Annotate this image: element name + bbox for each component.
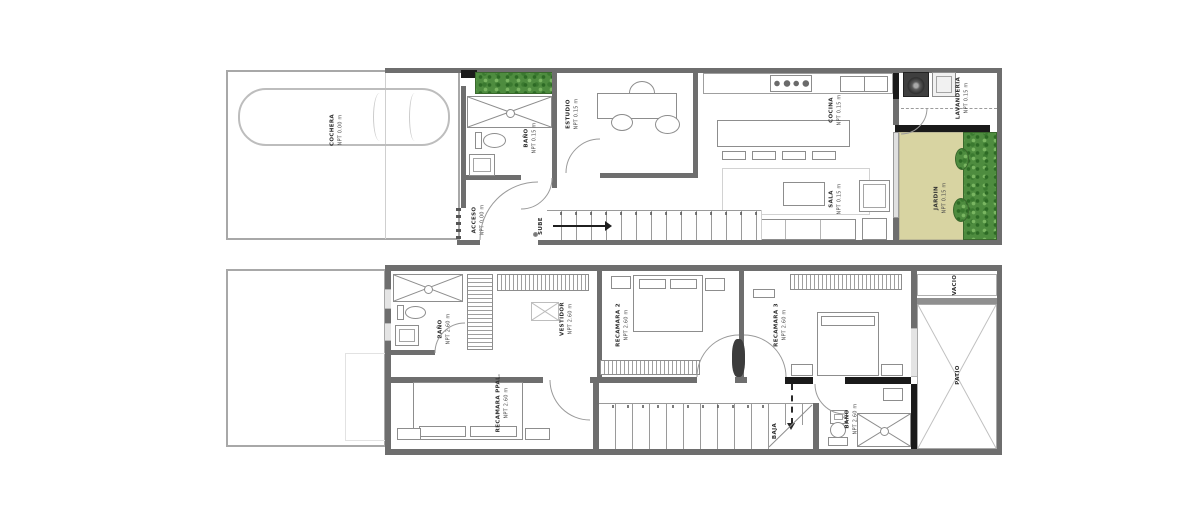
floor-plans-canvas: COCHERA NPT 0.00 m BAÑO NPT 0.15 m [0,0,1200,507]
first-floor-plan: COCHERA NPT 0.00 m BAÑO NPT 0.15 m [225,68,1002,245]
door-swing-arcs [225,265,1002,455]
door-swing-arcs [225,68,1002,245]
second-floor-plan: BAÑO NPT 2.60 m VESTIDOR NPT 2.60 m [225,265,1002,455]
